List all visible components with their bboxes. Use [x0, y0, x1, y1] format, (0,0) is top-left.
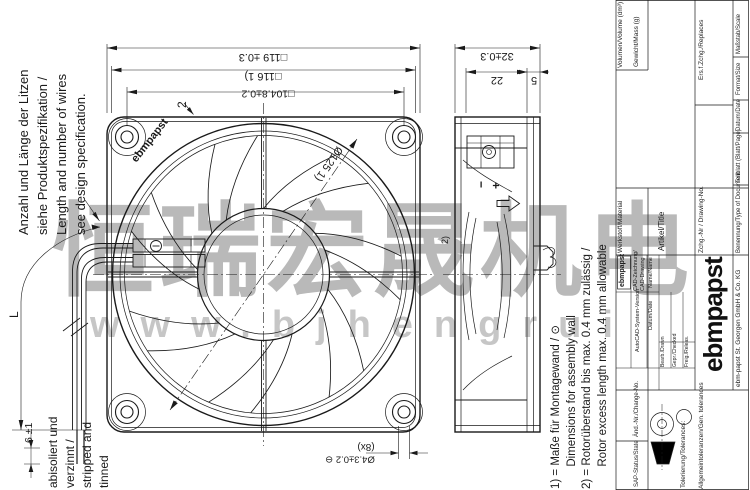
- dim-body-depth: 22: [467, 74, 527, 85]
- tb-doctype-label: Benennung/Type of Document: [736, 172, 742, 253]
- company-logo: ebmpapst: [700, 257, 726, 372]
- tb-small-logo: ebmpapst: [619, 254, 626, 287]
- tb-volume-label: Volumen/Volume (dm³): [618, 2, 625, 68]
- tb-gen-tolerances-label: Allgemeintoleranzen/Gen. tolerances: [699, 382, 706, 489]
- footnote-line: 1) = Maße für Montagewand / ⊙: [549, 244, 565, 489]
- tb-change-no-label: Änd.-Nr./Change-No.: [634, 381, 640, 437]
- stripped-note-line: verzinnt /: [62, 417, 79, 488]
- tb-drawn-label: Bearb./Drawn: [661, 336, 666, 367]
- dim-depth: 32±0.3: [447, 50, 547, 61]
- tb-autocad-label: AutoCAD-System-Version: [636, 289, 642, 352]
- dim-wall-thickness: 2: [176, 101, 188, 108]
- airflow-arrow-icon: [497, 196, 520, 211]
- tb-date2-label: Datum/Date: [649, 301, 655, 330]
- tb-checked-label: Gepr./Checked: [673, 334, 678, 367]
- stripped-note-line: tinned: [96, 417, 113, 488]
- stripped-tinned-note: abisoliert und verzinnt / stripped and t…: [45, 417, 113, 488]
- tb-replaces-label: Ers.f.Zchg./Replaces: [699, 20, 706, 80]
- dim-hole-pitch: □104.8±0.2: [208, 88, 328, 99]
- dim-flange-depth: 5: [519, 74, 549, 85]
- engineering-drawing-sheet: 恒瑞宏晟机电 www.bjhengrui: [0, 0, 750, 490]
- wire-spec-note-line: see design specification.: [71, 69, 90, 235]
- tb-cad-line: CAD-Drawing: [640, 250, 647, 291]
- tb-sap-status-label: SAP-Status/State: [634, 440, 640, 487]
- dim-lead-length: L: [8, 311, 20, 318]
- dim-strip-length: 6 ±1: [24, 423, 35, 443]
- footnote-line: Rotor excess length max. 0.4 mm allowabl…: [596, 244, 612, 489]
- tb-date-label: Datum/Date: [736, 99, 742, 131]
- wire-spec-note-line: Anzahl und Länge der Litzen: [14, 69, 33, 235]
- stripped-note-line: abisoliert und: [45, 417, 62, 488]
- tb-format-label: Format/Size: [736, 63, 742, 95]
- wire-spec-note-line: siehe Produktspezifikation /: [33, 69, 52, 235]
- dim-hole-count: (8x): [346, 441, 386, 451]
- tb-name-label: Name/Name: [649, 257, 655, 288]
- tb-material-label: Werkstoff/Material: [618, 201, 625, 253]
- footnote-line: 2) = Rotorüberstand bis max. 0.4 mm zulä…: [580, 244, 596, 489]
- tb-scale-label: Maßstab/Scale: [736, 14, 742, 54]
- tb-company-name: ebm-papst St. Georgen GmbH & Co. KG: [736, 270, 743, 387]
- tb-drawing-no-label: Zchg.-Nr / Drawing-No.: [699, 186, 706, 253]
- dim-frame-size: □119 ±0.3: [203, 51, 323, 62]
- terminal-plus-label: +: [490, 182, 502, 189]
- side-view: [443, 117, 561, 432]
- dim-assembly-frame: □116 1): [203, 70, 323, 81]
- footnote-line: Dimensions for assembly wall: [565, 244, 581, 489]
- tb-cad-label: CAD-Zeichnung/ CAD-Drawing: [633, 250, 646, 291]
- dimension-lines: [19, 44, 549, 478]
- wire-spec-note-line: Length and number of wires: [52, 69, 71, 235]
- drawing-footnotes: 1) = Maße für Montagewand / ⊙ Dimensions…: [549, 244, 611, 489]
- stripped-note-line: stripped and: [79, 417, 96, 488]
- tb-title-label: Artikel/Title: [658, 212, 666, 251]
- terminal-minus-label: −: [475, 181, 487, 188]
- dim-hole-dia: Ø4.3±0.2 ⊖: [318, 454, 382, 464]
- tb-tolerances-label: Tolerierung/Tolerances:: [681, 421, 688, 488]
- rotor-note-ref: 2): [441, 236, 450, 244]
- tb-mass-label: Gewicht/Mass (g): [634, 16, 641, 67]
- wire-spec-note: Anzahl und Länge der Litzen siehe Produk…: [14, 69, 90, 235]
- tb-cad-line: CAD-Zeichnung/: [633, 250, 640, 291]
- tb-released-label: Freig./Releas.: [685, 336, 690, 367]
